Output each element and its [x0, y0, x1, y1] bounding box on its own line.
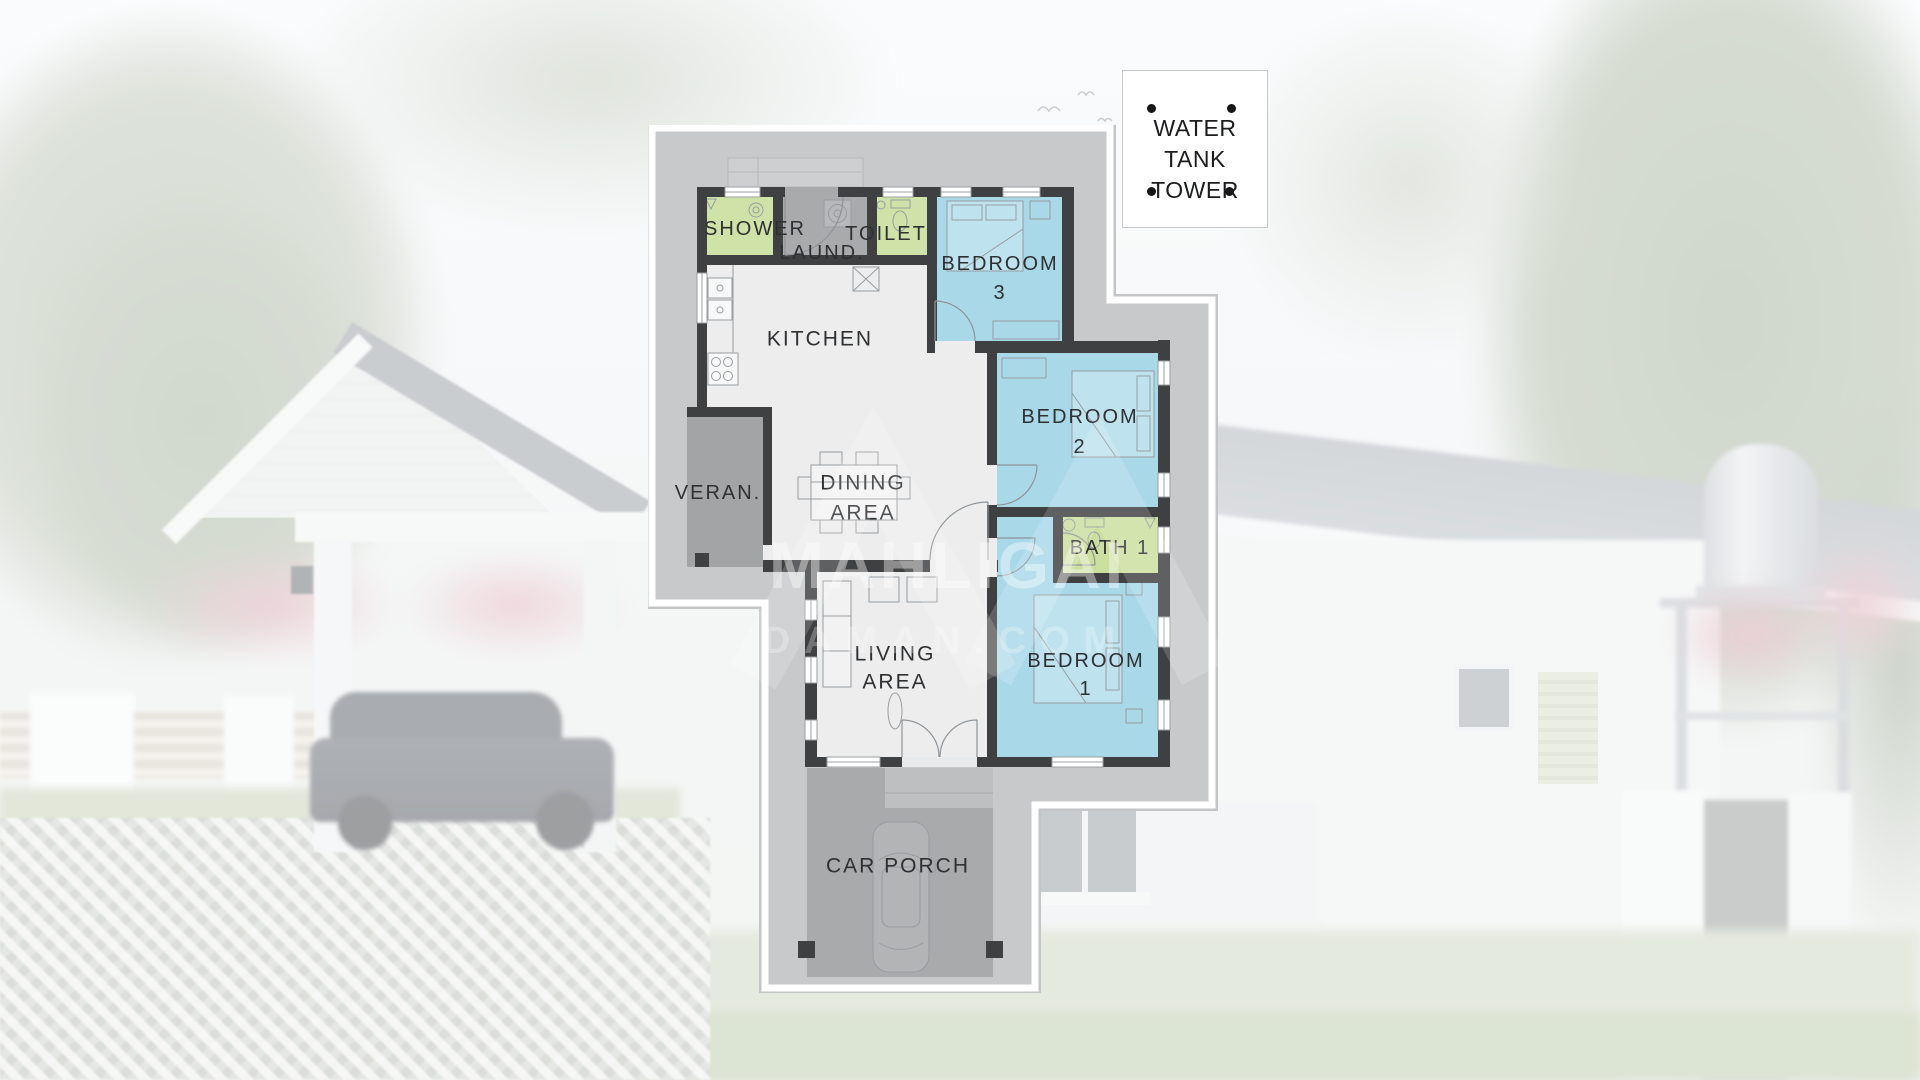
floorplan-scene: SHOWER LAUND. TOILET BEDROOM 3 KITCHEN V…: [0, 0, 1920, 1080]
label-bedroom1-line2: 1: [1079, 678, 1092, 700]
water-tank-callout-line2: TOWER: [1123, 175, 1267, 206]
label-kitchen: KITCHEN: [767, 328, 873, 351]
label-laundry: LAUND.: [779, 242, 864, 264]
label-bedroom3-line2: 3: [993, 282, 1006, 304]
label-carporch: CAR PORCH: [826, 855, 970, 878]
water-tank-callout: WATER TANK TOWER: [1122, 70, 1268, 228]
label-bedroom2-line1: BEDROOM: [1021, 406, 1138, 428]
callout-dot-top-right: [1227, 104, 1236, 113]
water-tank-callout-text: WATER TANK TOWER: [1123, 113, 1267, 206]
back-step: [728, 158, 863, 187]
label-veranda: VERAN.: [675, 482, 761, 504]
floor-plan: SHOWER LAUND. TOILET BEDROOM 3 KITCHEN V…: [648, 125, 1218, 993]
label-shower: SHOWER: [704, 218, 806, 240]
watermark-line2: DAMAN.COM: [763, 620, 1130, 662]
carporch-entry-step: [885, 768, 993, 808]
callout-dot-top-left: [1147, 104, 1156, 113]
water-tank-callout-line1: WATER TANK: [1123, 113, 1267, 175]
label-toilet: TOILET: [845, 223, 927, 245]
label-bedroom3-line1: BEDROOM: [941, 253, 1058, 275]
watermark-line1: MAHLIGAI: [769, 528, 1127, 602]
label-living-line2: AREA: [862, 671, 927, 694]
